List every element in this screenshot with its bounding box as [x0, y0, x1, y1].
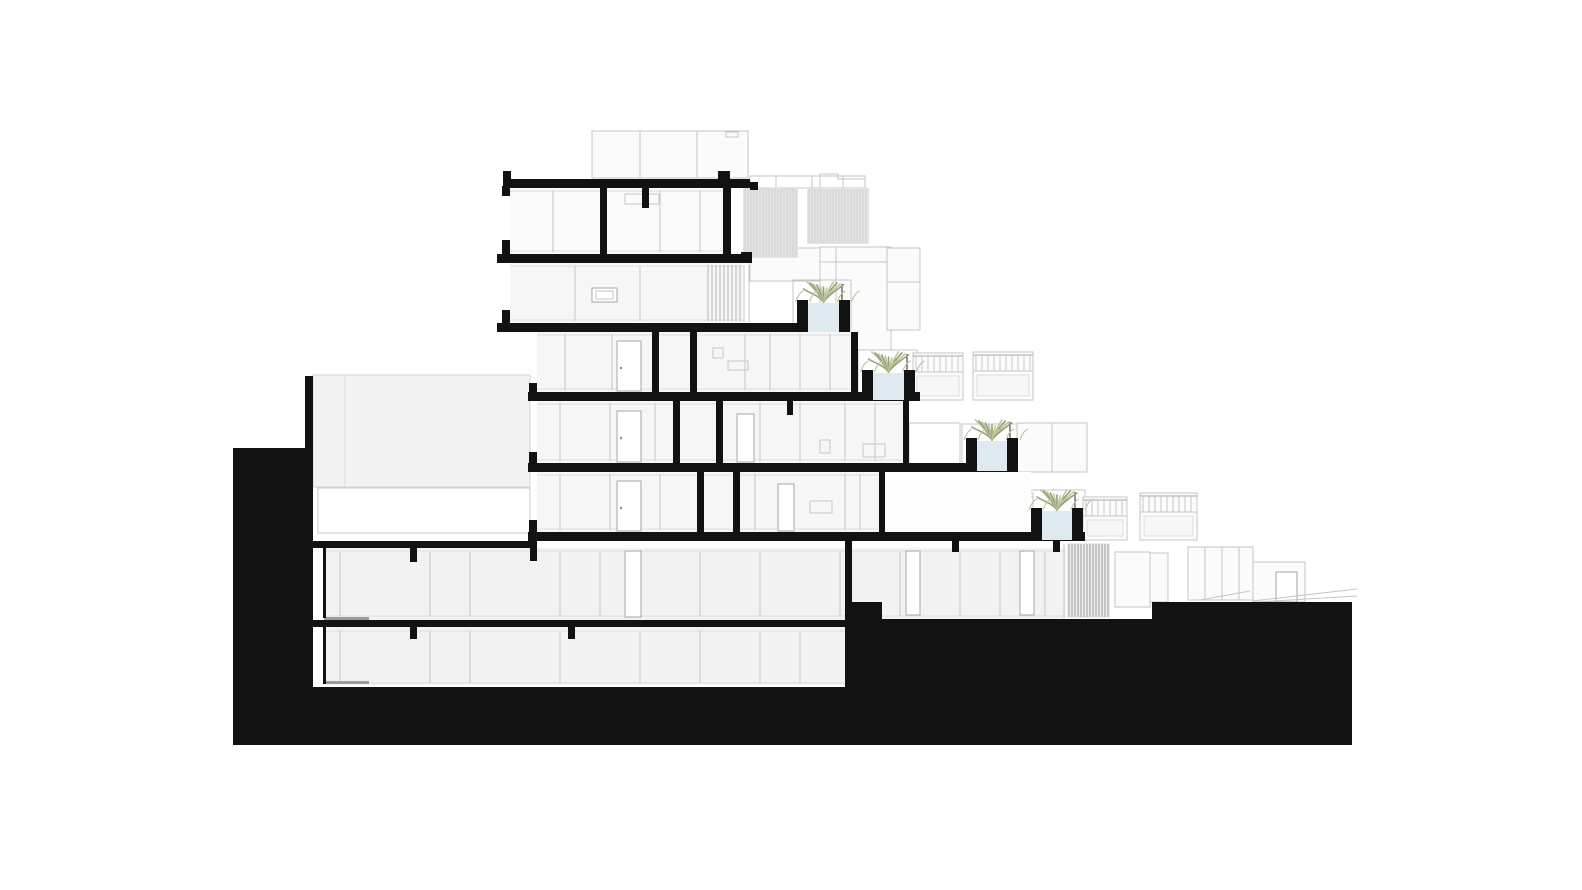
louver-panel: [743, 187, 798, 258]
slab-ground-left: [313, 541, 535, 548]
roof-parapet: [718, 171, 730, 180]
railing: [1083, 497, 1127, 540]
hatch-ticks: [324, 681, 369, 684]
slab-ground-right: [528, 532, 1085, 541]
door: [625, 551, 641, 617]
rear-band: [318, 488, 530, 533]
roof-terrace-outline: [750, 176, 865, 188]
door: [1020, 551, 1034, 615]
retaining-wall: [305, 376, 313, 451]
door: [617, 481, 641, 531]
door: [737, 414, 754, 462]
building-section-drawing: [0, 0, 1582, 890]
floor-1-interior: [510, 188, 723, 254]
slab-level-4: [528, 392, 920, 401]
slab-level-2: [497, 254, 750, 263]
hatch-ticks: [324, 617, 369, 620]
door: [617, 341, 641, 391]
louver-panel: [1067, 543, 1110, 618]
door: [778, 484, 794, 531]
door: [906, 551, 920, 615]
railing: [913, 353, 963, 400]
basement-interior: [326, 627, 845, 685]
slab-level-5: [528, 463, 1018, 472]
penthouse-outline: [592, 131, 748, 178]
floor-5-interior: [537, 472, 879, 532]
railing: [973, 352, 1033, 400]
section-drawing-canvas: [0, 0, 1582, 890]
louver-panel: [807, 188, 869, 244]
roof-slab: [503, 179, 750, 188]
rear-block-outline: [313, 375, 530, 487]
slab-basement: [313, 620, 880, 627]
door: [617, 411, 641, 462]
ground-floor-interior: [326, 548, 1066, 620]
railing: [1140, 493, 1197, 540]
right-ground-mass: [845, 602, 1352, 745]
bottom-ground-band: [233, 687, 880, 745]
